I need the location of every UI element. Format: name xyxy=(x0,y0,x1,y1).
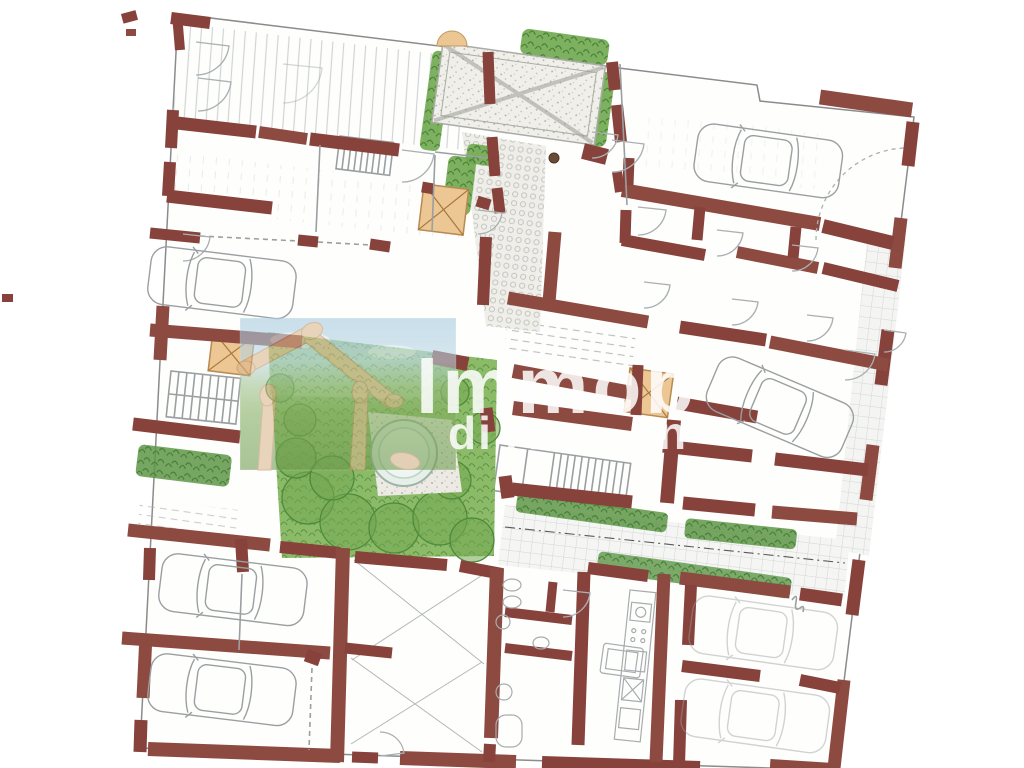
floor-plan-drawing: Immob di A n xyxy=(0,0,1024,768)
floor-plan-scan: Immob di A n xyxy=(0,0,1024,768)
balcony-arc xyxy=(437,31,467,46)
watermark-line2: di A xyxy=(448,407,541,459)
tree-trunk-dot xyxy=(549,153,559,163)
watermark-line2-fragment: n xyxy=(658,407,686,459)
